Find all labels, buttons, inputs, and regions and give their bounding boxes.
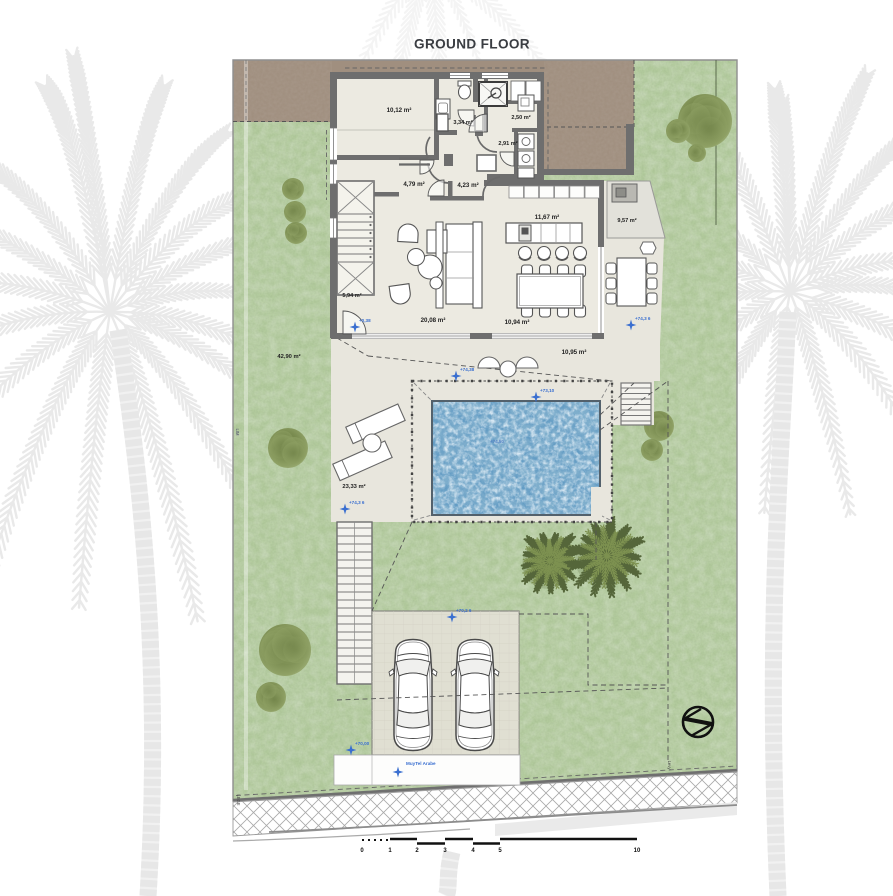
svg-text:10,94 m²: 10,94 m²	[505, 319, 530, 326]
svg-text:LIM: LIM	[235, 429, 240, 436]
svg-text:+74,3 6: +74,3 6	[349, 500, 365, 505]
svg-text:Levy: Levy	[667, 761, 672, 771]
svg-text:+70,00: +70,00	[355, 741, 370, 746]
svg-text:10: 10	[634, 848, 641, 854]
svg-text:4,23 m²: 4,23 m²	[457, 182, 478, 189]
svg-text:LEGE: LEGE	[236, 794, 241, 805]
svg-text:10,95 m²: 10,95 m²	[562, 349, 587, 356]
svg-text:10,12 m²: 10,12 m²	[387, 107, 412, 114]
svg-text:GROUND FLOOR: GROUND FLOOR	[414, 37, 530, 52]
svg-text:9,57 m²: 9,57 m²	[617, 217, 636, 224]
svg-text:3,34 m²: 3,34 m²	[453, 119, 472, 126]
svg-text:2: 2	[415, 848, 419, 854]
svg-text:2,91 m²: 2,91 m²	[498, 140, 517, 147]
svg-text:1: 1	[388, 848, 392, 854]
svg-text:42,90 m²: 42,90 m²	[277, 353, 300, 360]
svg-text:+74,38: +74,38	[460, 367, 475, 372]
svg-text:4,79 m²: 4,79 m²	[403, 181, 424, 188]
svg-text:2,50 m²: 2,50 m²	[511, 114, 530, 121]
svg-text:23,33 m²: 23,33 m²	[342, 483, 365, 490]
svg-text:11,67 m²: 11,67 m²	[535, 214, 559, 221]
svg-text:+0,38: +0,38	[359, 318, 371, 323]
svg-text:+70,2 6: +70,2 6	[456, 608, 472, 613]
svg-text:4: 4	[471, 848, 475, 854]
svg-text:MuyTel Arabe: MuyTel Arabe	[406, 761, 436, 766]
svg-text:+73,10: +73,10	[540, 388, 555, 393]
svg-text:0: 0	[360, 848, 364, 854]
svg-text:5,94 m²: 5,94 m²	[342, 292, 361, 299]
svg-text:+74,3 6: +74,3 6	[635, 316, 651, 321]
svg-text:20,08 m²: 20,08 m²	[421, 317, 446, 324]
svg-text:5: 5	[498, 848, 502, 854]
svg-text:+74,50: +74,50	[490, 439, 504, 444]
